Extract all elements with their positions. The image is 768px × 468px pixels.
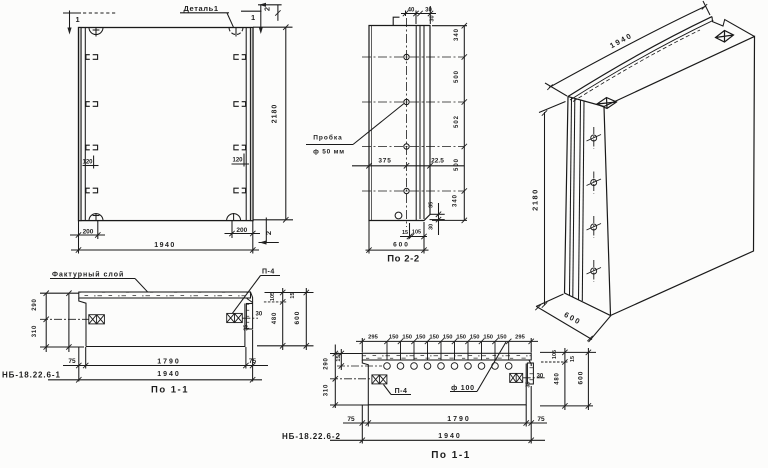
svg-text:30: 30 (430, 15, 436, 21)
svg-text:75: 75 (537, 416, 545, 423)
svg-text:480: 480 (272, 312, 278, 324)
svg-text:2180: 2180 (272, 104, 279, 124)
svg-text:Деталь1: Деталь1 (184, 4, 219, 13)
svg-text:75: 75 (68, 358, 76, 365)
svg-text:150: 150 (429, 335, 439, 341)
svg-text:30: 30 (256, 312, 263, 318)
svg-text:150: 150 (483, 335, 493, 341)
svg-text:1790: 1790 (157, 359, 181, 366)
svg-text:1: 1 (251, 13, 255, 22)
svg-text:500: 500 (454, 70, 460, 83)
svg-text:200: 200 (236, 227, 247, 234)
svg-text:502: 502 (454, 115, 460, 128)
svg-text:340: 340 (454, 28, 460, 41)
svg-text:105: 105 (270, 292, 276, 301)
svg-text:1940: 1940 (154, 242, 176, 249)
svg-text:По 1-1: По 1-1 (151, 385, 189, 396)
svg-text:30: 30 (425, 8, 432, 14)
svg-text:500: 500 (454, 158, 460, 171)
svg-text:150: 150 (443, 335, 453, 341)
svg-text:40: 40 (408, 8, 415, 14)
svg-text:150: 150 (497, 335, 507, 341)
svg-text:120: 120 (232, 158, 243, 164)
svg-text:2: 2 (263, 7, 272, 11)
svg-text:120: 120 (82, 159, 93, 165)
svg-text:15: 15 (570, 356, 576, 362)
svg-text:Фактурный слой: Фактурный слой (52, 271, 124, 279)
svg-text:2: 2 (264, 231, 273, 235)
svg-text:600: 600 (393, 241, 410, 248)
svg-text:30: 30 (537, 374, 544, 380)
svg-text:310: 310 (324, 384, 330, 396)
svg-text:600: 600 (294, 311, 301, 325)
svg-text:150: 150 (456, 335, 466, 341)
svg-text:35: 35 (429, 202, 435, 208)
svg-text:375: 375 (378, 158, 391, 165)
svg-text:150: 150 (389, 335, 399, 341)
svg-text:200: 200 (83, 229, 94, 236)
svg-text:ф 50 мм: ф 50 мм (313, 149, 345, 156)
svg-text:105: 105 (552, 350, 558, 359)
svg-text:П-4: П-4 (395, 388, 408, 395)
svg-text:П-4: П-4 (262, 269, 275, 276)
svg-text:75: 75 (347, 416, 355, 423)
svg-text:ф 100: ф 100 (451, 385, 475, 392)
svg-text:1940: 1940 (438, 433, 462, 440)
svg-text:1: 1 (76, 15, 80, 24)
svg-text:150: 150 (336, 352, 342, 361)
svg-text:295: 295 (515, 335, 525, 341)
svg-text:35: 35 (244, 325, 250, 331)
svg-text:600: 600 (578, 371, 585, 385)
svg-text:295: 295 (368, 335, 378, 341)
svg-text:105: 105 (412, 229, 421, 235)
svg-text:2180: 2180 (531, 188, 540, 211)
svg-text:15: 15 (402, 230, 408, 236)
svg-text:30: 30 (429, 224, 435, 230)
svg-text:НБ-18.22.6-2: НБ-18.22.6-2 (282, 432, 341, 441)
svg-text:75: 75 (249, 358, 257, 365)
svg-text:340: 340 (453, 194, 459, 207)
svg-text:150: 150 (416, 335, 426, 341)
svg-text:Пробка: Пробка (313, 134, 343, 142)
svg-text:1790: 1790 (447, 416, 471, 423)
svg-text:15: 15 (290, 292, 296, 298)
svg-text:150: 150 (402, 335, 412, 341)
svg-text:НБ-18.22.6-1: НБ-18.22.6-1 (2, 370, 61, 379)
svg-text:1940: 1940 (157, 371, 181, 378)
svg-text:22.5: 22.5 (431, 158, 444, 165)
svg-text:290: 290 (32, 298, 38, 310)
svg-text:480: 480 (555, 372, 561, 384)
svg-text:По 2-2: По 2-2 (387, 254, 420, 265)
svg-text:150: 150 (470, 335, 480, 341)
svg-text:По 1-1: По 1-1 (431, 450, 471, 461)
svg-text:290: 290 (324, 357, 330, 369)
svg-text:310: 310 (32, 325, 38, 337)
